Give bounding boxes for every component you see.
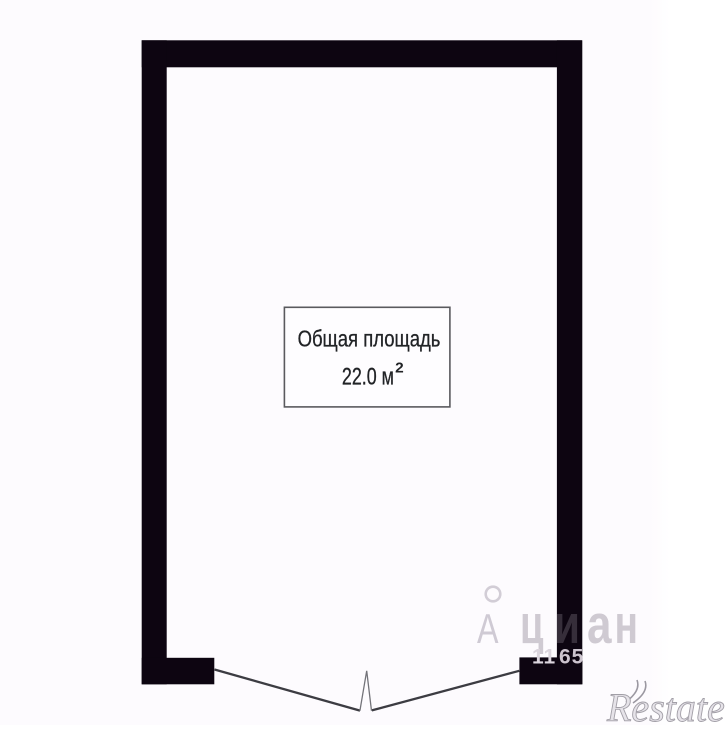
svg-text:65: 65 (559, 646, 584, 669)
svg-text:11: 11 (532, 646, 556, 669)
svg-text:22.0 м: 22.0 м (342, 363, 394, 390)
svg-text:Restate: Restate (606, 685, 725, 725)
svg-text:Общая площадь: Общая площадь (298, 326, 441, 352)
svg-text:н: н (615, 593, 639, 655)
svg-text:а: а (587, 593, 612, 655)
svg-text:2: 2 (395, 361, 404, 377)
svg-text:А: А (477, 605, 499, 652)
